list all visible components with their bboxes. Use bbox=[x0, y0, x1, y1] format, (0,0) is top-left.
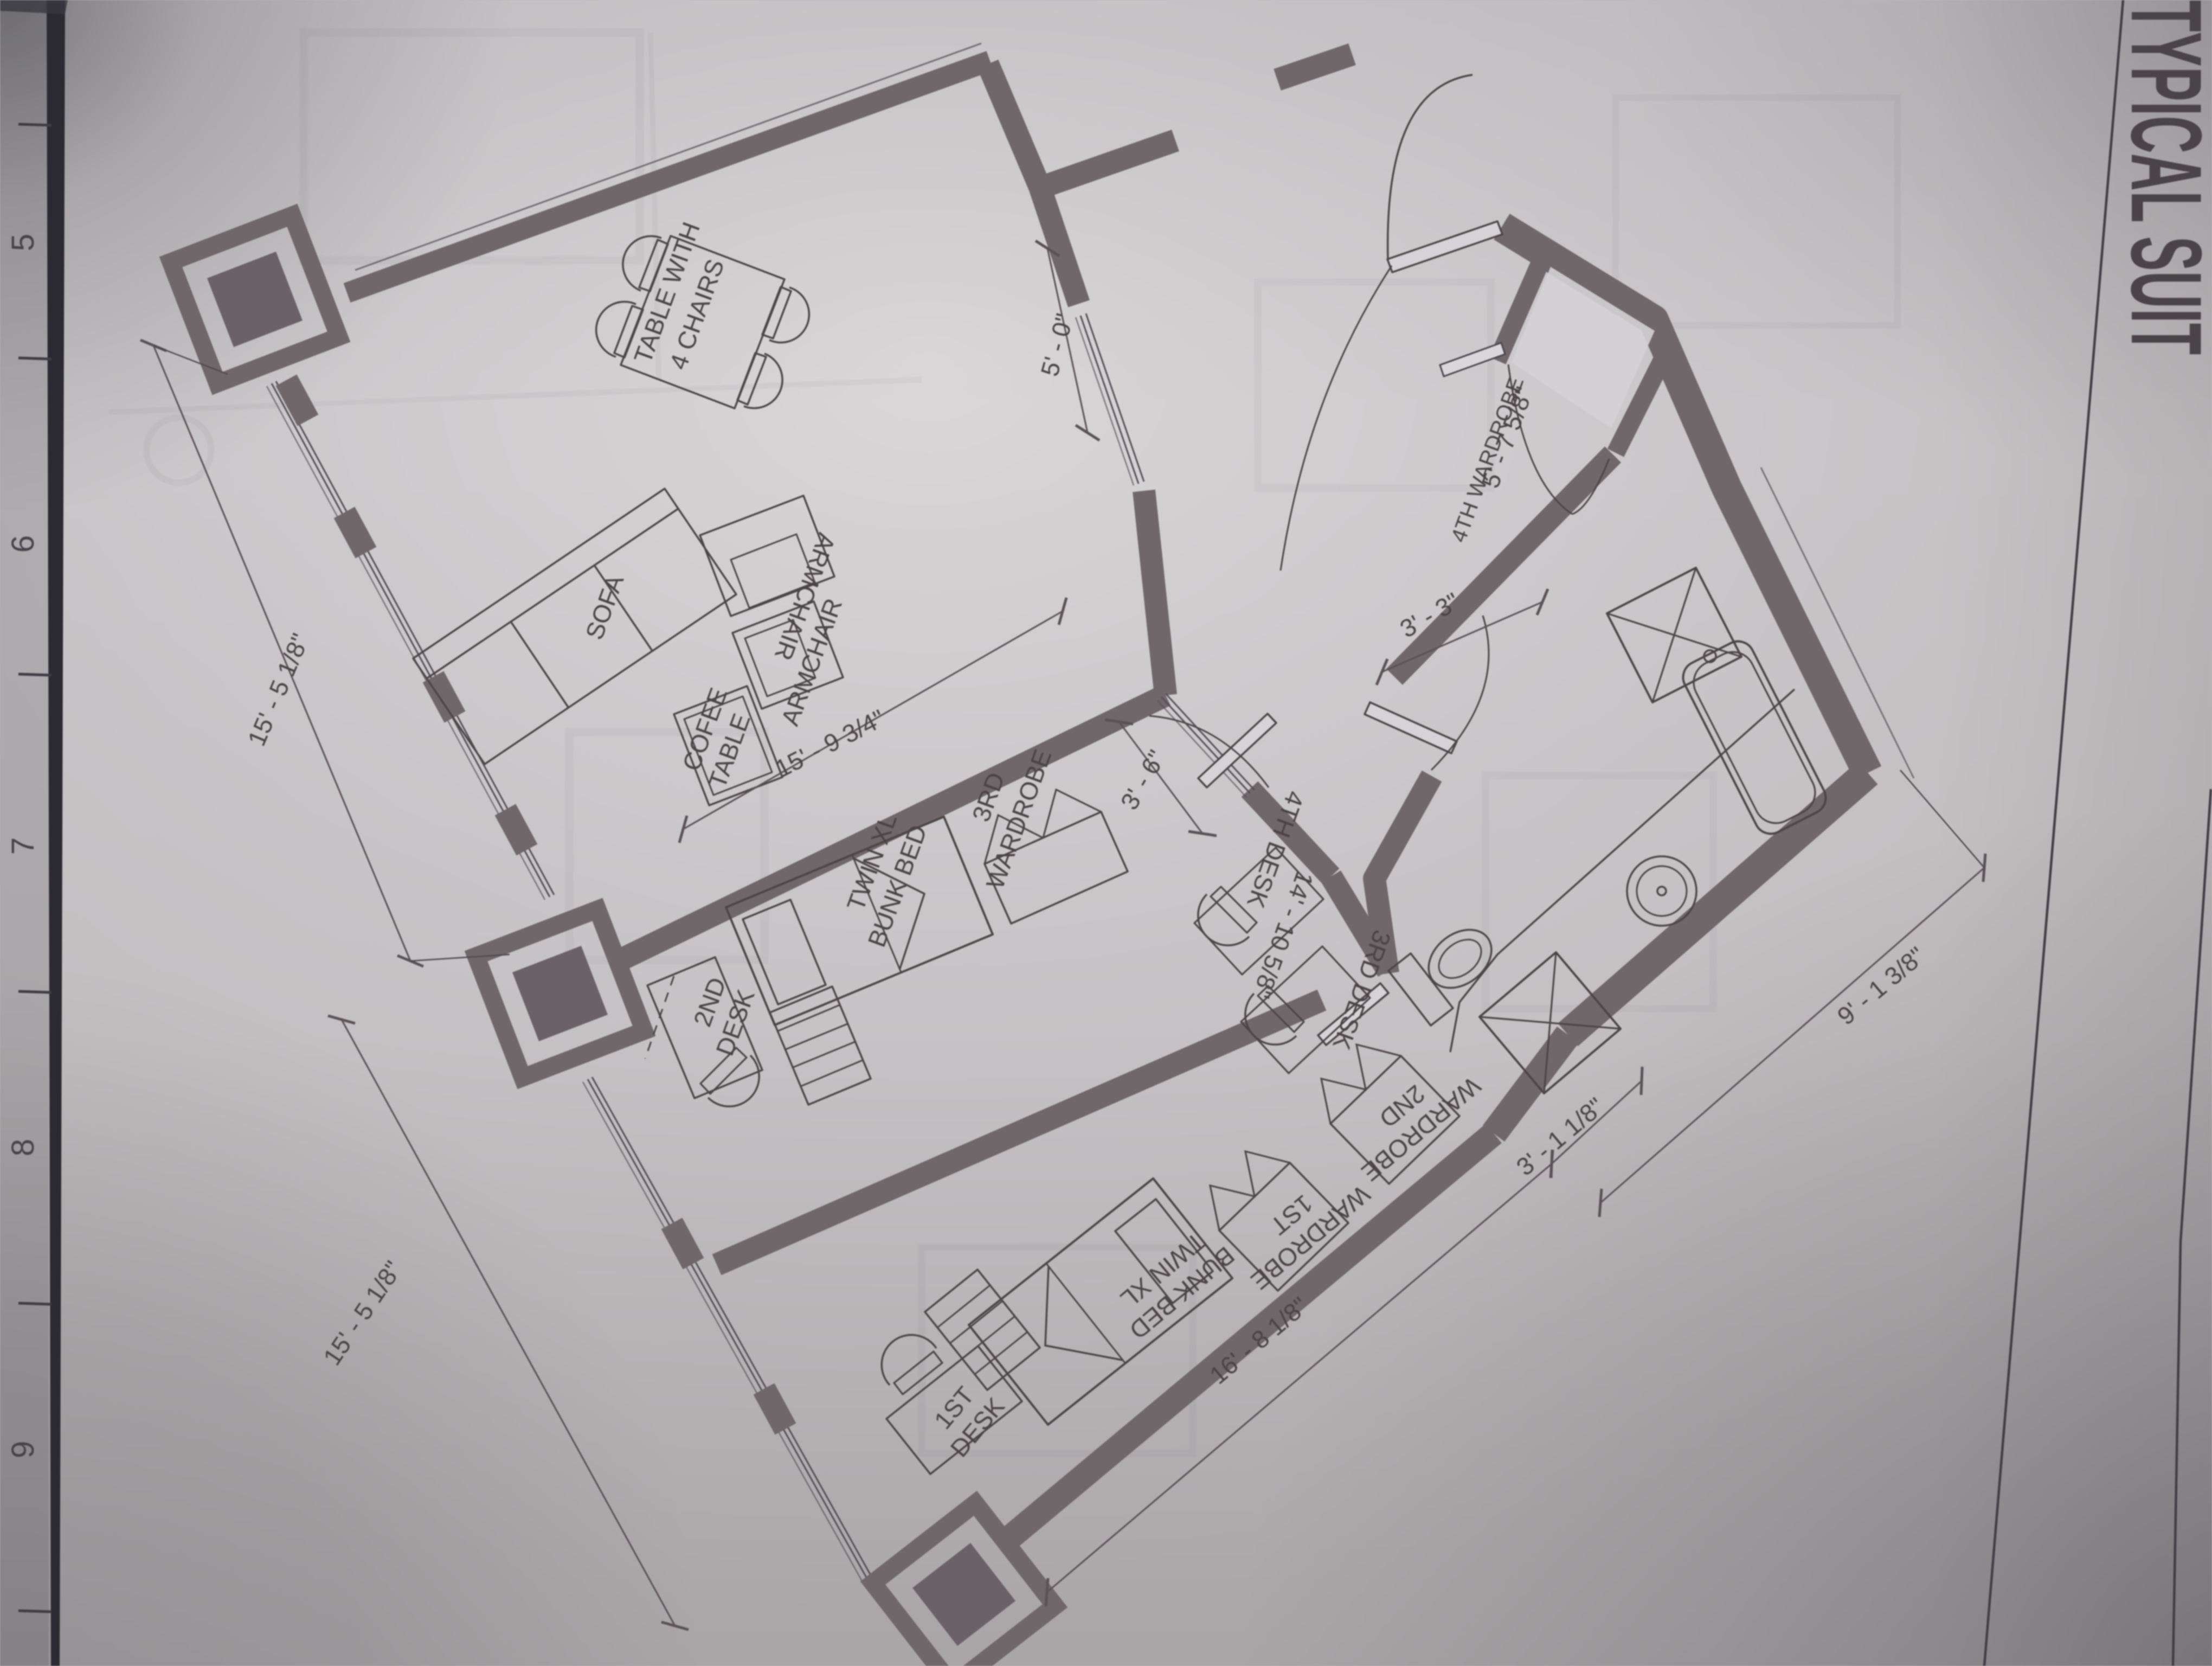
svg-text:7: 7 bbox=[5, 837, 41, 855]
svg-text:9: 9 bbox=[5, 1441, 41, 1458]
svg-text:6: 6 bbox=[5, 535, 41, 553]
svg-text:8: 8 bbox=[5, 1139, 41, 1156]
svg-text:5: 5 bbox=[5, 234, 41, 251]
svg-text:TYPICAL SUIT: TYPICAL SUIT bbox=[2110, 0, 2212, 355]
